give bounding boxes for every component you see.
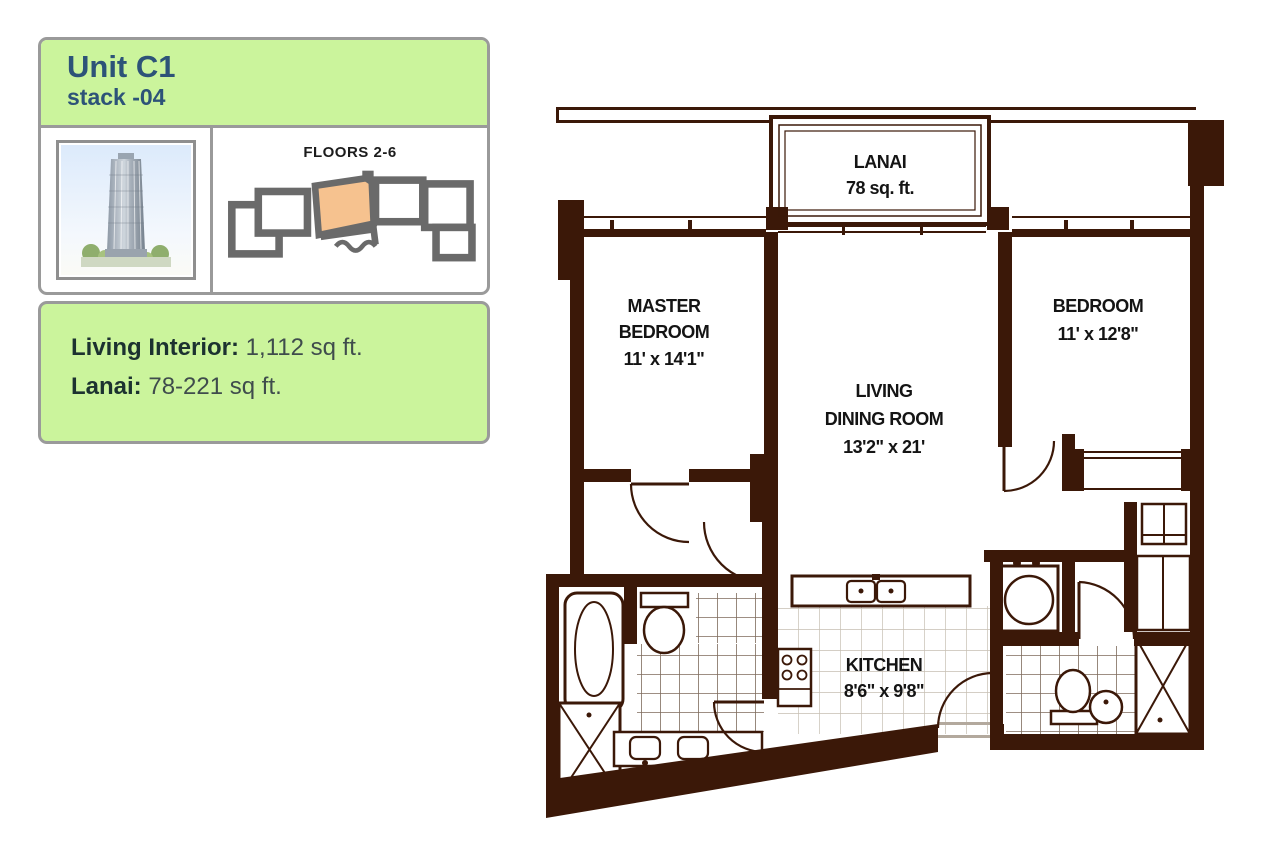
area-stats-card: Living Interior: 1,112 sq ft. Lanai: 78-…: [38, 301, 490, 444]
sink-2: [1090, 691, 1122, 723]
washer-dryer: [1001, 559, 1058, 631]
living-interior-stat: Living Interior: 1,112 sq ft.: [71, 328, 487, 367]
hall-closet: [1137, 556, 1190, 630]
living-interior-label: Living Interior:: [71, 334, 239, 361]
master-bedroom-door: [631, 484, 689, 542]
floors-range-label: FLOORS 2-6: [303, 144, 396, 161]
linen-cabinet: [1142, 504, 1186, 544]
bathtub: [565, 593, 623, 711]
floorplan-page: { "panel": { "title": "Unit C1", "subtit…: [0, 0, 1266, 844]
unit-card-header: Unit C1 stack -04: [41, 40, 487, 128]
lanai-value: 78-221 sq ft.: [148, 373, 281, 400]
bedroom-dims: 11' x 12'8": [1058, 324, 1139, 344]
shower-stall-2: [1136, 638, 1190, 734]
hallway-door: [704, 522, 764, 582]
building-tower-photo: [61, 145, 191, 275]
unit-stack-subtitle: stack -04: [67, 84, 487, 110]
living-interior-value: 1,112 sq ft.: [246, 334, 363, 361]
living-dining-label-2: DINING ROOM: [825, 409, 944, 429]
living-dining-label-1: LIVING: [855, 381, 912, 401]
master-bedroom-label-1: MASTER: [628, 296, 702, 316]
bedroom-door: [1004, 441, 1054, 491]
lanai-label: Lanai:: [71, 373, 142, 400]
lanai-area-label: 78 sq. ft.: [846, 178, 914, 198]
lanai-label: LANAI: [854, 152, 907, 172]
highlighted-unit-shape: [315, 178, 374, 235]
kitchen-label: KITCHEN: [846, 655, 923, 675]
kitchen-dims: 8'6" x 9'8": [844, 681, 924, 701]
floorplate-locator-diagram: [221, 165, 479, 269]
floor-plan: LANAI 78 sq. ft. MASTER BEDROOM 11' x 14…: [546, 104, 1236, 826]
living-dining-dims: 13'2" x 21': [843, 437, 925, 457]
stove: [778, 649, 811, 706]
lanai-stat: Lanai: 78-221 sq ft.: [71, 367, 487, 406]
master-bedroom-dims: 11' x 14'1": [624, 349, 705, 369]
building-photo-cell: [41, 128, 213, 292]
bedroom-label: BEDROOM: [1053, 296, 1144, 316]
unit-title: Unit C1: [67, 50, 487, 84]
unit-card-body: FLOORS 2-6: [41, 128, 487, 292]
master-bedroom-label-2: BEDROOM: [619, 322, 710, 342]
toilet: [641, 593, 688, 653]
unit-info-card: Unit C1 stack -04: [38, 37, 490, 295]
building-photo-frame: [56, 140, 196, 280]
floors-cell: FLOORS 2-6: [213, 128, 487, 292]
